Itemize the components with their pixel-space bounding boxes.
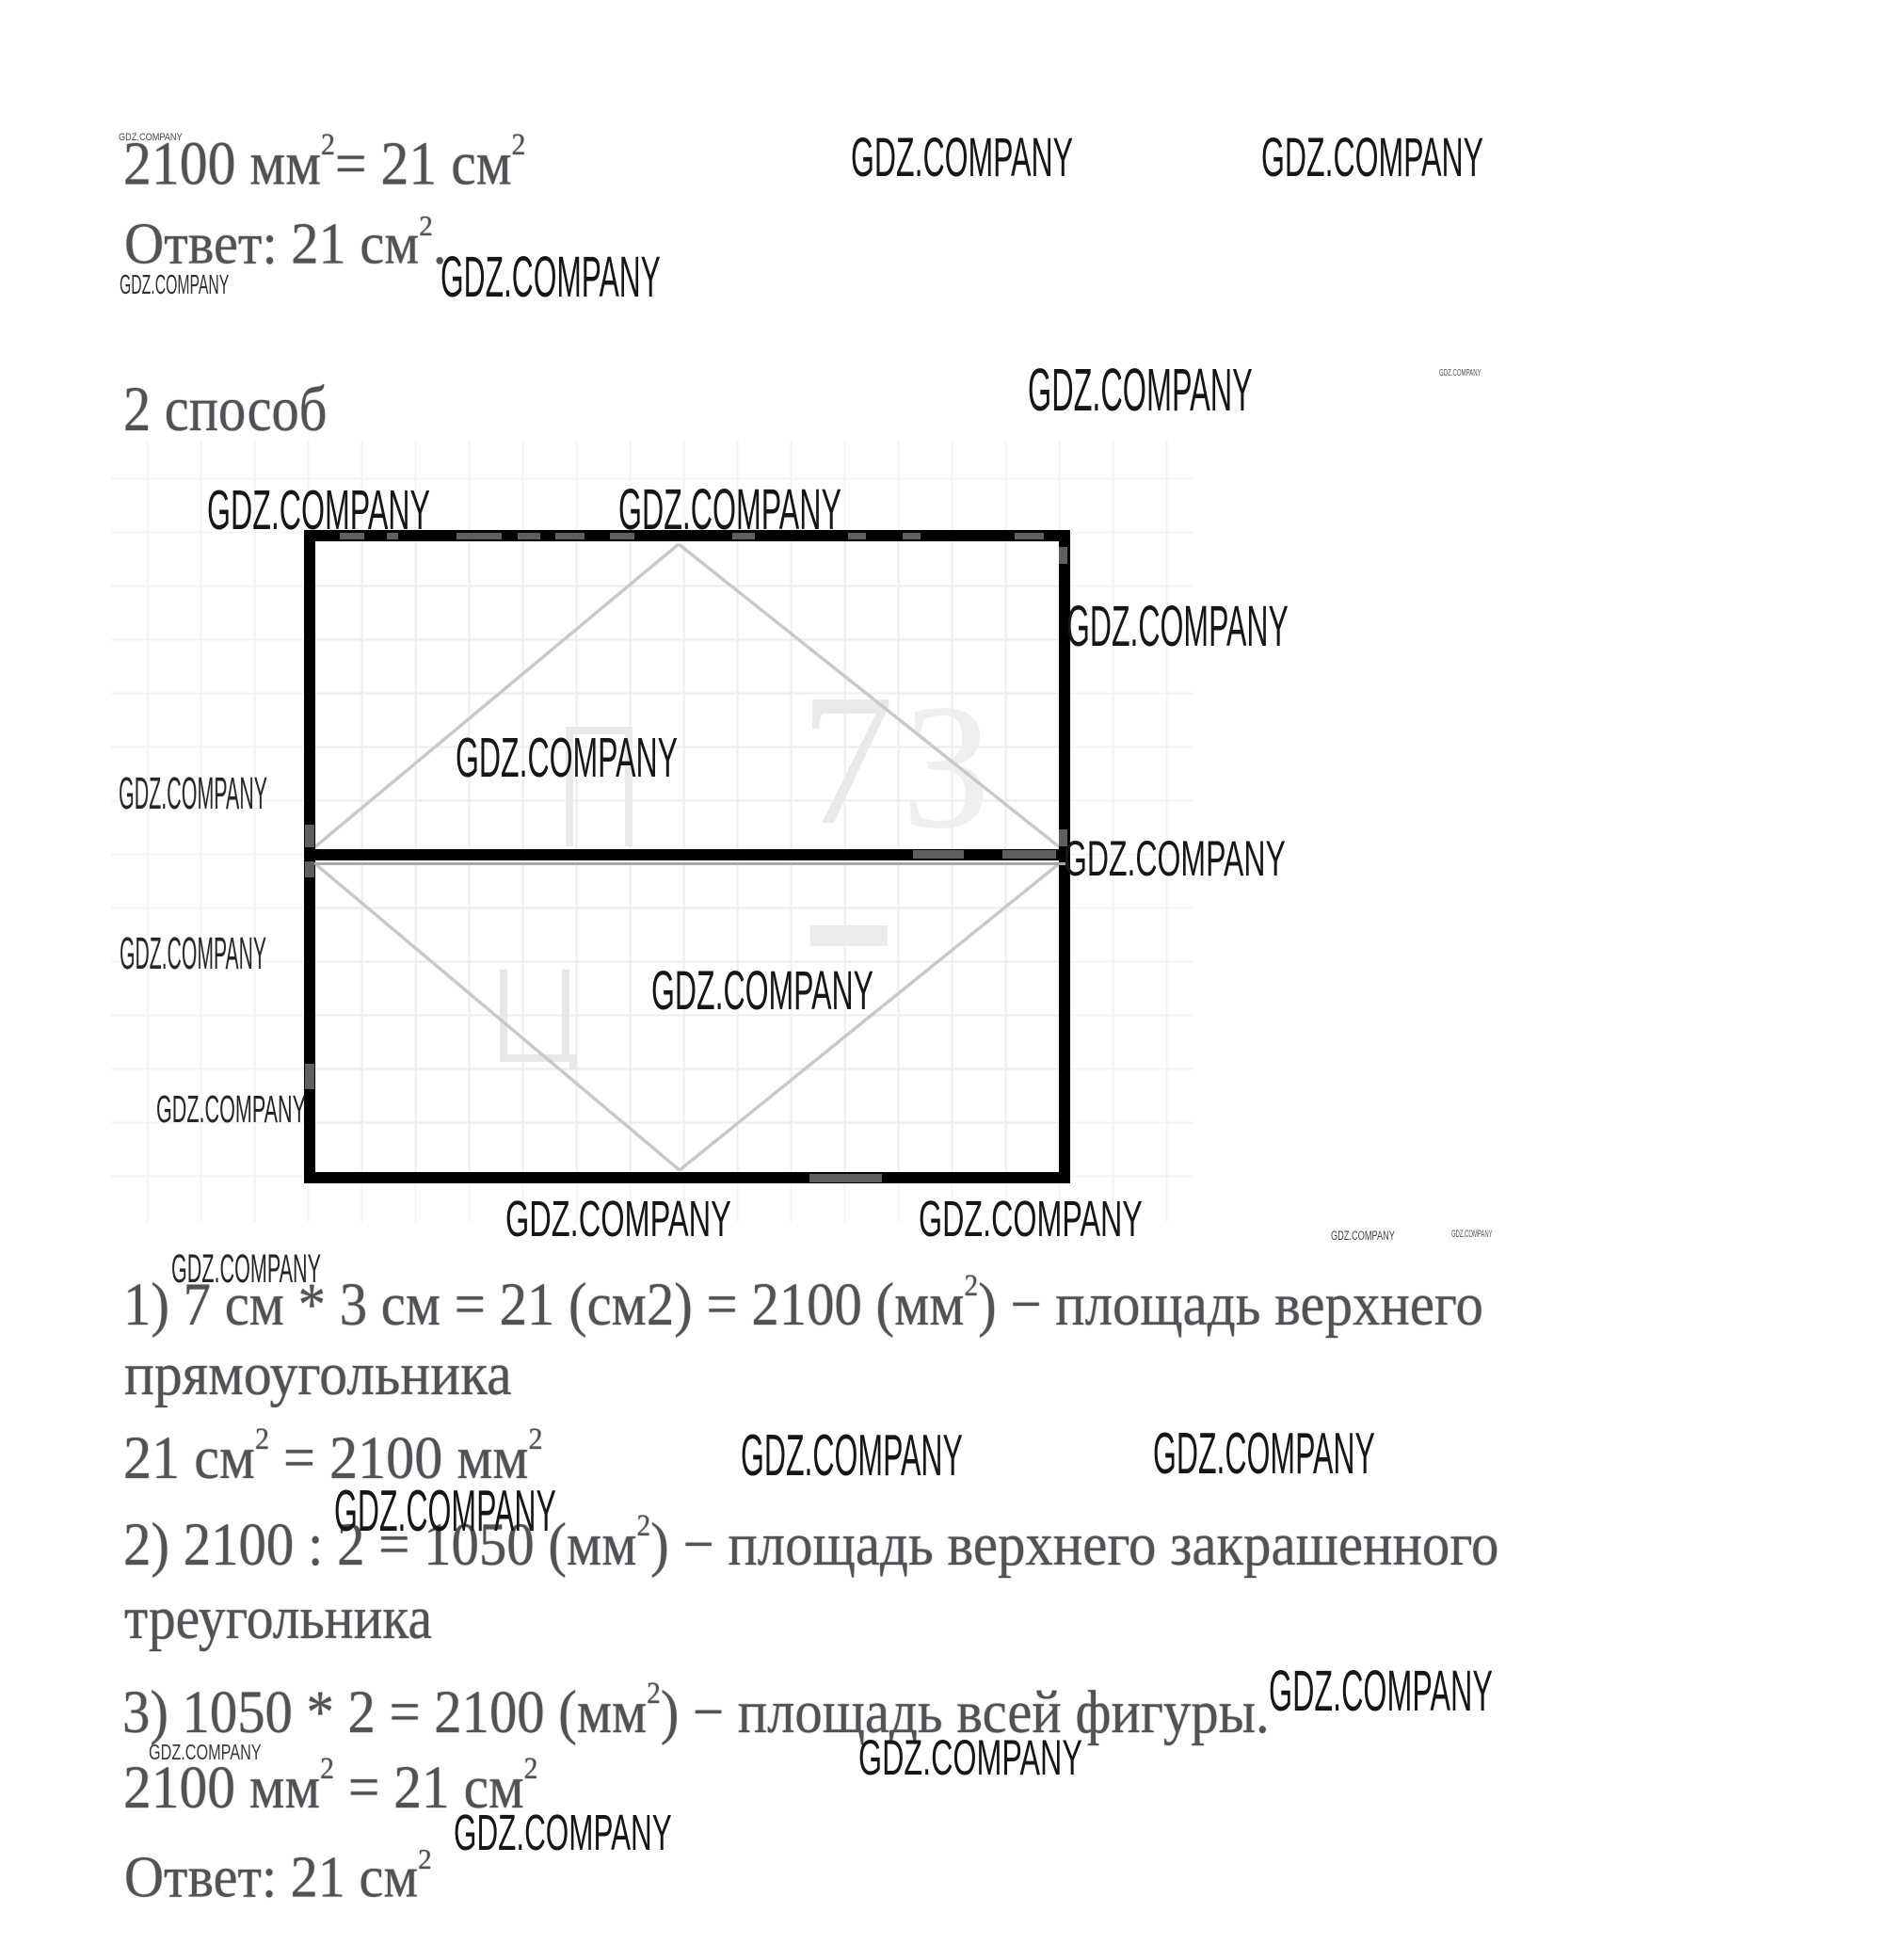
svg-text:7: 7 [800,656,894,864]
svg-text:З: З [902,668,991,866]
